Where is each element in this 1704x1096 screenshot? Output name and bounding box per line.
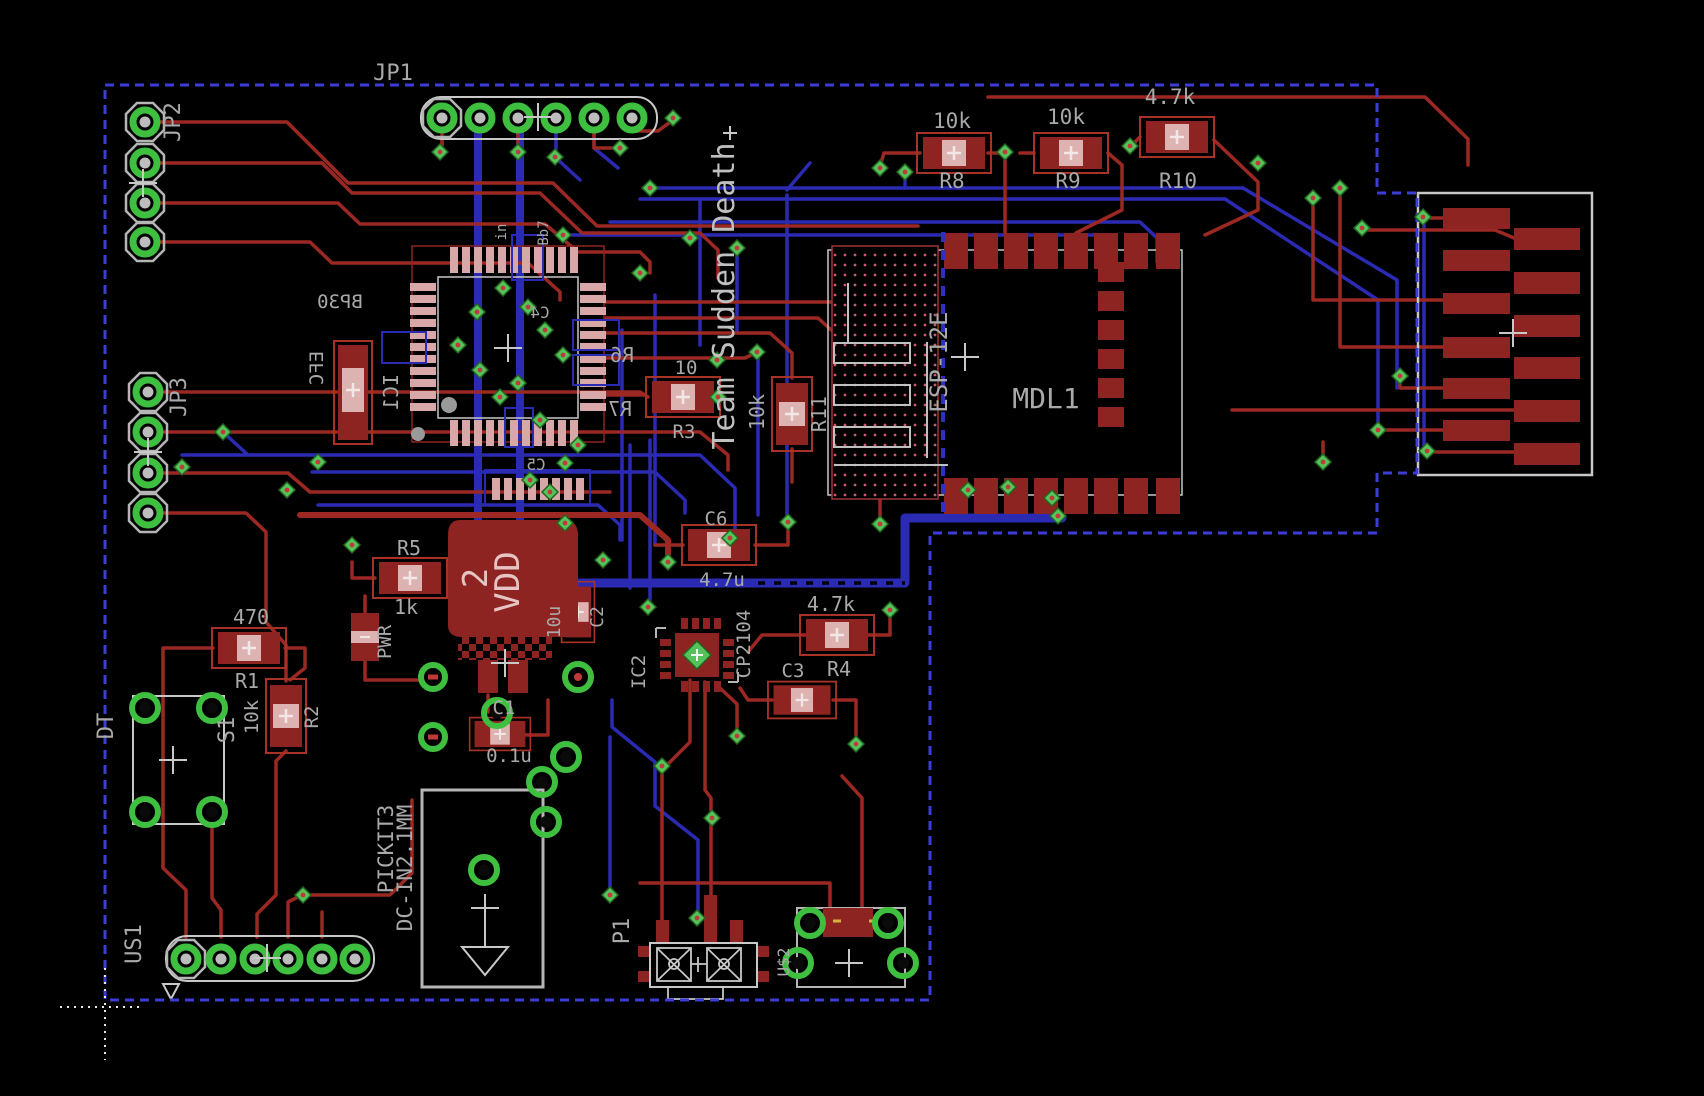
label-r10: R10 — [1159, 169, 1197, 193]
label-mdl1: MDL1 — [1012, 382, 1079, 415]
component-r4[interactable] — [800, 615, 874, 655]
component-c6[interactable] — [682, 525, 756, 565]
component-r5[interactable] — [373, 558, 447, 598]
component-r8[interactable] — [917, 133, 991, 173]
label-c5-mirrored: C5 — [526, 455, 545, 474]
label-c2: C2 — [587, 606, 608, 628]
component-bottom-cap[interactable] — [334, 341, 372, 444]
label-ic1-pkg2-mirrored: BP30 — [317, 291, 363, 313]
label-s1: S1 — [215, 717, 240, 744]
label-ic1-pkg-mirrored: EFC — [306, 351, 328, 385]
label-jp1: JP1 — [373, 61, 413, 86]
pin1-dot — [411, 427, 425, 441]
label-u2: U$2 — [774, 948, 793, 977]
component-r11[interactable] — [772, 377, 812, 451]
label-dt: DT — [94, 713, 119, 740]
label-team-name: Team Sudden Death — [707, 142, 742, 449]
label-r3: R3 — [673, 421, 696, 443]
label-c6-value: 4.7u — [699, 569, 745, 591]
label-c4-mirrored: C4 — [530, 303, 549, 322]
pcb-editor-canvas[interactable]: JP1 JP2 JP3 10k R8 10k R9 4.7k R10 10k R… — [0, 0, 1704, 1096]
label-r1-value: 470 — [233, 605, 269, 629]
label-c2-value: 10u — [544, 606, 565, 639]
label-ic2: IC2 — [628, 655, 650, 689]
component-r10[interactable] — [1140, 117, 1214, 157]
component-r2[interactable] — [266, 679, 306, 753]
component-jp3[interactable] — [129, 373, 167, 532]
label-r2-value: 10k — [241, 699, 263, 734]
label-r5: R5 — [397, 536, 421, 560]
label-c6: C6 — [705, 508, 728, 530]
label-r6-mirrored: R6 — [610, 343, 634, 367]
label-p1: P1 — [610, 918, 635, 945]
label-r1: R1 — [235, 669, 259, 693]
label-dc-in: DC-IN2.1MM — [393, 805, 417, 931]
label-r8: R8 — [939, 169, 964, 193]
component-r9[interactable] — [1034, 133, 1108, 173]
component-c3[interactable] — [768, 682, 836, 719]
component-r1[interactable] — [212, 628, 286, 668]
label-ic1-mirrored: IC1 — [379, 374, 403, 410]
label-r5-value: 1k — [394, 595, 418, 619]
label-jp2: JP2 — [161, 102, 186, 142]
label-r9-value: 10k — [1047, 105, 1085, 129]
label-r7-mirrored: R7 — [608, 397, 632, 421]
label-vdd: VDD — [488, 551, 528, 612]
label-r9: R9 — [1055, 169, 1080, 193]
label-r8-value: 10k — [933, 109, 971, 133]
pin1-dot2 — [441, 397, 457, 413]
label-r11: R11 — [807, 396, 831, 432]
label-r4: R4 — [827, 657, 851, 681]
label-c3: C3 — [782, 660, 805, 682]
label-us1: US1 — [122, 924, 147, 964]
label-net-bb: Bb7 — [536, 220, 552, 245]
label-c1-value: 0.1u — [486, 745, 532, 767]
label-esp12e: ESP-12E — [925, 311, 953, 412]
label-c1: C1 — [493, 697, 516, 719]
label-r11-value: 10k — [745, 394, 769, 430]
label-r3-value: 10 — [675, 357, 698, 379]
label-r4-value: 4.7k — [807, 592, 855, 616]
label-r2: R2 — [301, 706, 323, 729]
label-ic2-part: CP2104 — [733, 610, 755, 679]
label-pwr: PWR — [374, 624, 396, 659]
label-jp3: JP3 — [167, 377, 192, 417]
label-net-in: in — [494, 224, 510, 241]
label-r10-value: 4.7k — [1145, 85, 1196, 109]
